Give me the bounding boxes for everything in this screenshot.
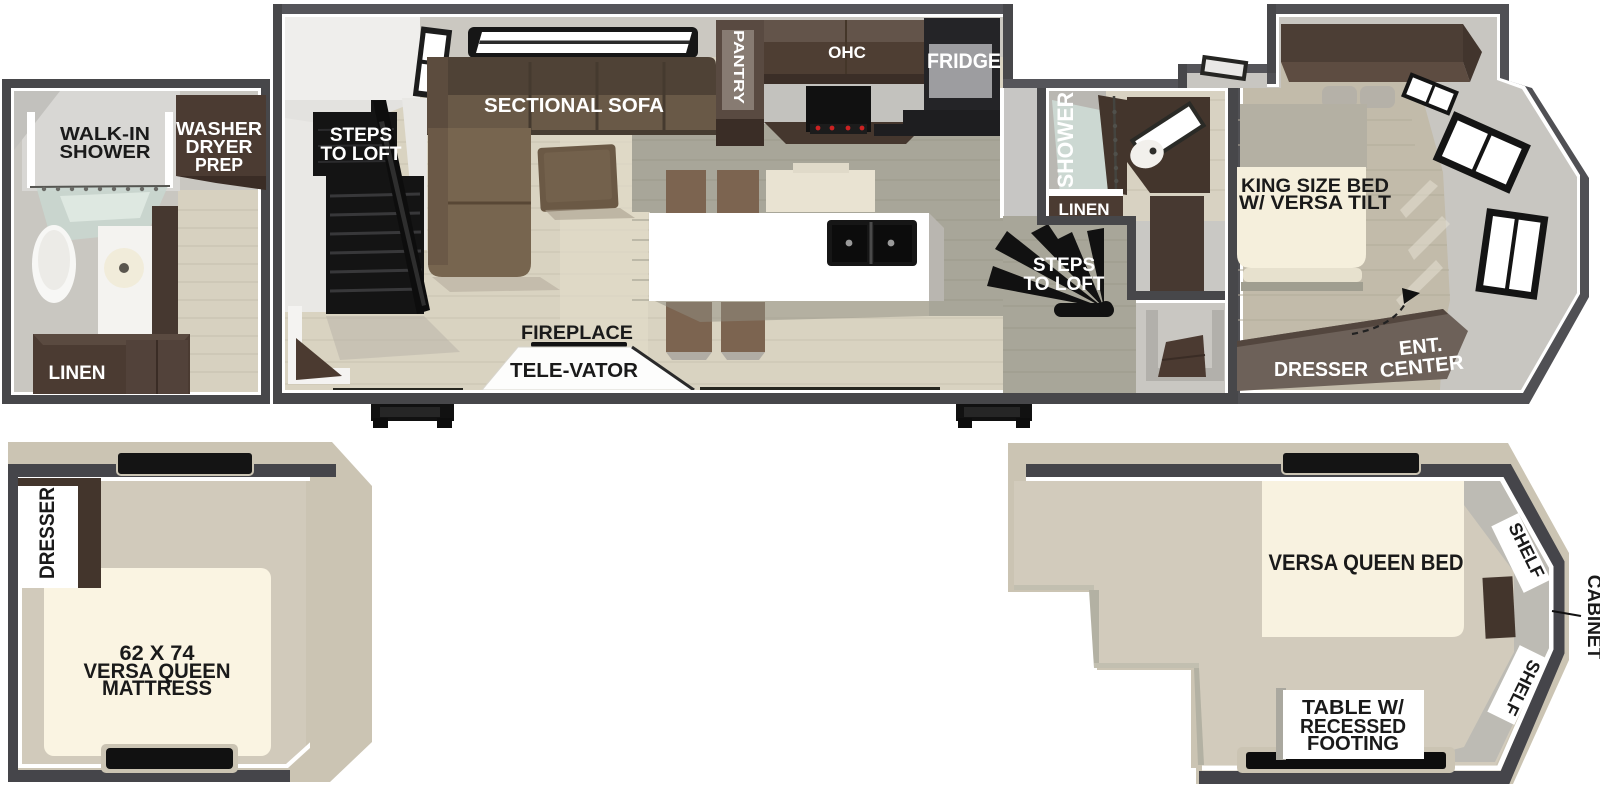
svg-text:VERSA QUEEN BED: VERSA QUEEN BED	[1269, 550, 1464, 575]
svg-text:CABINET: CABINET	[1583, 575, 1600, 660]
svg-text:FIREPLACE: FIREPLACE	[521, 323, 633, 344]
svg-text:PREP: PREP	[195, 155, 243, 175]
svg-text:SHOWER: SHOWER	[1053, 92, 1078, 188]
svg-text:WALK-IN: WALK-IN	[60, 124, 150, 144]
svg-text:DRYER: DRYER	[186, 137, 253, 157]
svg-text:FRIDGE: FRIDGE	[927, 50, 1001, 73]
svg-text:STEPS: STEPS	[330, 125, 392, 146]
svg-text:OHC: OHC	[828, 43, 866, 62]
svg-text:TELE-VATOR: TELE-VATOR	[510, 360, 639, 382]
svg-text:DRESSER: DRESSER	[36, 487, 59, 579]
svg-text:DRESSER: DRESSER	[1274, 359, 1369, 381]
svg-text:STEPS: STEPS	[1033, 255, 1095, 276]
svg-text:WASHER: WASHER	[176, 119, 262, 139]
svg-text:W/ VERSA TILT: W/ VERSA TILT	[1239, 193, 1391, 214]
svg-text:TO LOFT: TO LOFT	[321, 144, 402, 165]
svg-text:FOOTING: FOOTING	[1307, 733, 1399, 755]
svg-text:SECTIONAL SOFA: SECTIONAL SOFA	[484, 95, 664, 117]
svg-text:SHOWER: SHOWER	[60, 142, 151, 162]
svg-text:PANTRY: PANTRY	[730, 30, 747, 104]
svg-text:TO LOFT: TO LOFT	[1024, 274, 1105, 295]
svg-text:MATTRESS: MATTRESS	[102, 677, 212, 700]
svg-text:LINEN: LINEN	[49, 363, 106, 384]
